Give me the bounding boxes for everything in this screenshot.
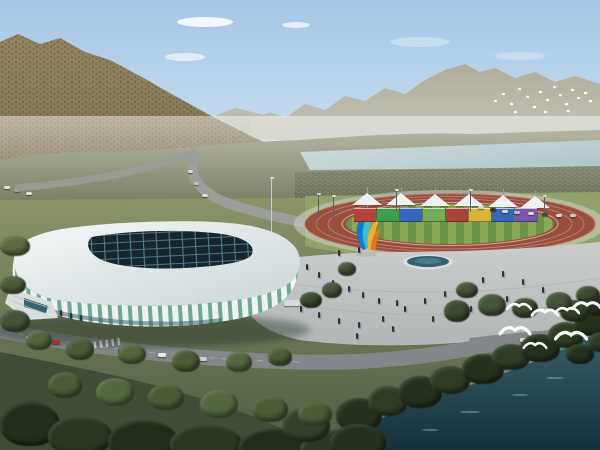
fountain [403,255,453,270]
scene-sports-complex-rendering [0,0,600,450]
stadium-skylight-grid [88,231,253,269]
stadium [0,221,310,347]
scene-svg [0,0,600,450]
